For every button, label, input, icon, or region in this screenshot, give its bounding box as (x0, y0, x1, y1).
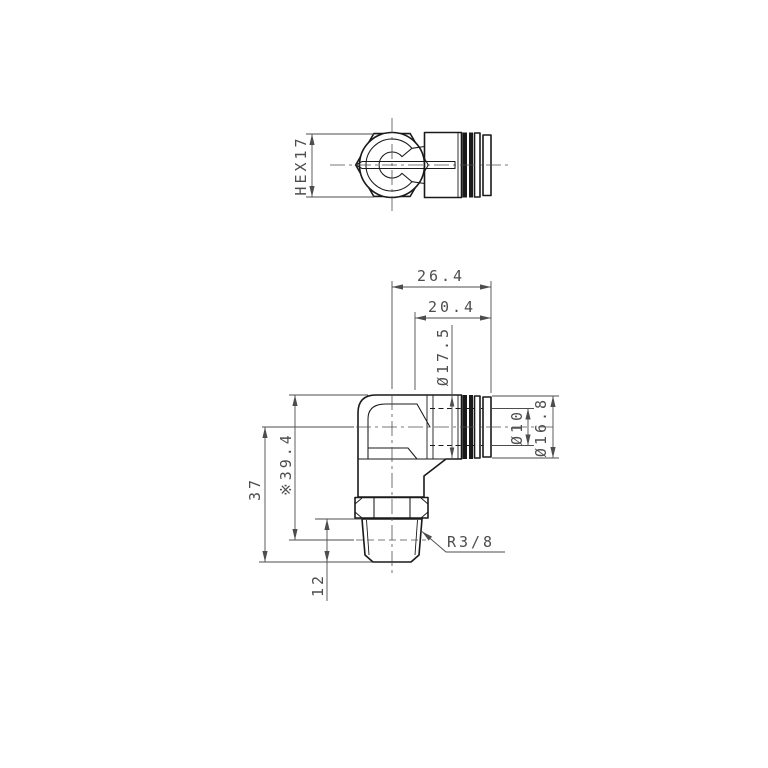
dim-label-ref-height: ※39.4 (277, 432, 295, 496)
dim-label-hex17: HEX17 (292, 135, 310, 195)
dim-label-overall-width: 26.4 (417, 267, 465, 285)
dim-label-ring-dia: Ø16.8 (532, 397, 550, 457)
top-view: HEX17 (292, 118, 512, 212)
dim-label-tube-dia: Ø10 (508, 409, 526, 445)
dim-label-thread-size: R3/8 (447, 533, 495, 551)
front-view-body-outline (358, 395, 462, 497)
front-view-hex-nut (355, 498, 428, 519)
dim-label-total-height: 37 (246, 477, 264, 501)
dim-label-thread-length: 12 (309, 573, 327, 597)
dim-label-body-dia: Ø17.5 (434, 326, 452, 386)
dim-label-body-width: 20.4 (428, 298, 476, 316)
technical-drawing-canvas: HEX17 (0, 0, 768, 768)
front-view: 26.4 20.4 Ø17.5 Ø10 Ø16.8 37 ※39.4 12 (246, 267, 559, 601)
